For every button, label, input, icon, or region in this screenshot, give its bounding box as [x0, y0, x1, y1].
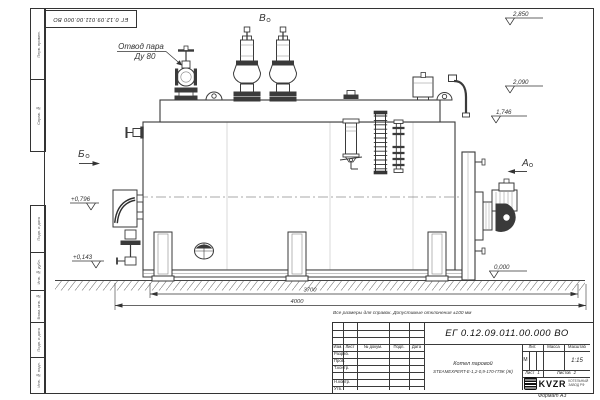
col-ndoc: № докум. [357, 344, 389, 351]
lit-value: М [522, 351, 529, 370]
callout-line1: Отвод пара [118, 42, 164, 51]
top-deck [160, 100, 440, 122]
kvzr-logo-text: KVZR [539, 379, 567, 389]
sheets-label: Листов [557, 371, 571, 375]
gauge-glass-column [393, 120, 405, 173]
bent-pipe [449, 75, 470, 117]
view-label-b: Б [78, 149, 85, 160]
burner [475, 179, 517, 240]
col-podp: Подп. [389, 344, 409, 351]
scale-header: Масштаб [564, 344, 590, 351]
dim-value: 4000 [291, 299, 305, 305]
doc-name-line1: Котел паровой [453, 361, 492, 367]
elevation-0796: +0,796 [70, 196, 99, 210]
elevation-value: 1,746 [496, 109, 512, 116]
side-valve [127, 127, 144, 138]
lit-header: Лит. [522, 344, 543, 351]
feed-unit [113, 190, 143, 265]
mass-header: Масса [543, 344, 564, 351]
sheet-label: Лист [525, 371, 534, 375]
elevation-0143: +0,143 [72, 254, 104, 268]
dim-value: 3700 [304, 288, 318, 294]
scale-value: 1:15 [564, 351, 590, 370]
view-label-v: В [259, 13, 266, 24]
view-arrow-v: В [259, 13, 270, 24]
col-list: Лист [343, 344, 357, 351]
elevation-2850: 2,850 [505, 11, 543, 25]
row-tkontr: Т.контр. [334, 365, 357, 372]
callout-line2: Ду 80 [134, 52, 156, 61]
logo-cell: KVZR КОТЕЛЬНЫЙ ЗАВОД РФ [522, 377, 590, 390]
drawing-sheet: { "frame": { "stamp": "ЕГ 0.12.09.011.00… [0, 0, 600, 400]
sheet-value: 1 [537, 371, 539, 375]
steam-outlet-valve [175, 46, 197, 100]
designation: ЕГ 0.12.09.011.00.000 ВО [424, 323, 590, 344]
elevation-value: 0,000 [494, 264, 510, 271]
elevation-value: +0,796 [71, 196, 91, 203]
safety-valve [270, 27, 297, 101]
safety-valve [234, 27, 261, 101]
format-label: Формат А3 [538, 393, 566, 399]
manhole [194, 243, 214, 259]
view-arrow-b: Б [78, 149, 100, 166]
deck-nozzle [344, 91, 358, 99]
doc-name-cell: Котел паровой STEAMEXPERT-Е-1,2-0,9-170-… [424, 344, 522, 390]
sheet-cell: Лист1 [522, 370, 543, 377]
sheets-value: 2 [574, 371, 576, 375]
doc-name-line2: STEAMEXPERT-Е-1,2-0,9-170-ГПЖ (Ж) [433, 369, 513, 374]
steam-outlet-callout: Отвод пара Ду 80 [117, 42, 182, 66]
row-prov: Пров. [334, 358, 357, 365]
view-label-a: А [521, 158, 529, 169]
view-arrow-a: А [508, 158, 533, 174]
sheets-cell: Листов2 [543, 370, 590, 377]
elevation-1746: 1,746 [491, 109, 527, 123]
kvzr-logo-icon [524, 377, 537, 390]
control-box [413, 73, 433, 101]
row-nkontr: Н.контр. [334, 379, 357, 386]
ground-line [55, 281, 585, 291]
elevation-value: 2,850 [512, 11, 529, 18]
level-gauge-ladder [374, 111, 387, 174]
elevation-0000: 0,000 [489, 264, 527, 278]
col-izm: Изм. [333, 344, 343, 351]
row-razrab: Разраб. [334, 351, 357, 358]
reference-note: Все размеры для справок. Допустимые откл… [333, 311, 563, 316]
title-block: Изм. Лист № докум. Подп. Дата Разраб. Пр… [332, 322, 594, 394]
logo-sub2: ЗАВОД РФ [568, 384, 588, 388]
row-utv: Утв. [334, 386, 357, 393]
col-data: Дата [409, 344, 424, 351]
elevation-2090: 2,090 [505, 79, 543, 93]
elevation-value: +0,143 [73, 254, 93, 261]
elevation-value: 2,090 [512, 79, 529, 86]
